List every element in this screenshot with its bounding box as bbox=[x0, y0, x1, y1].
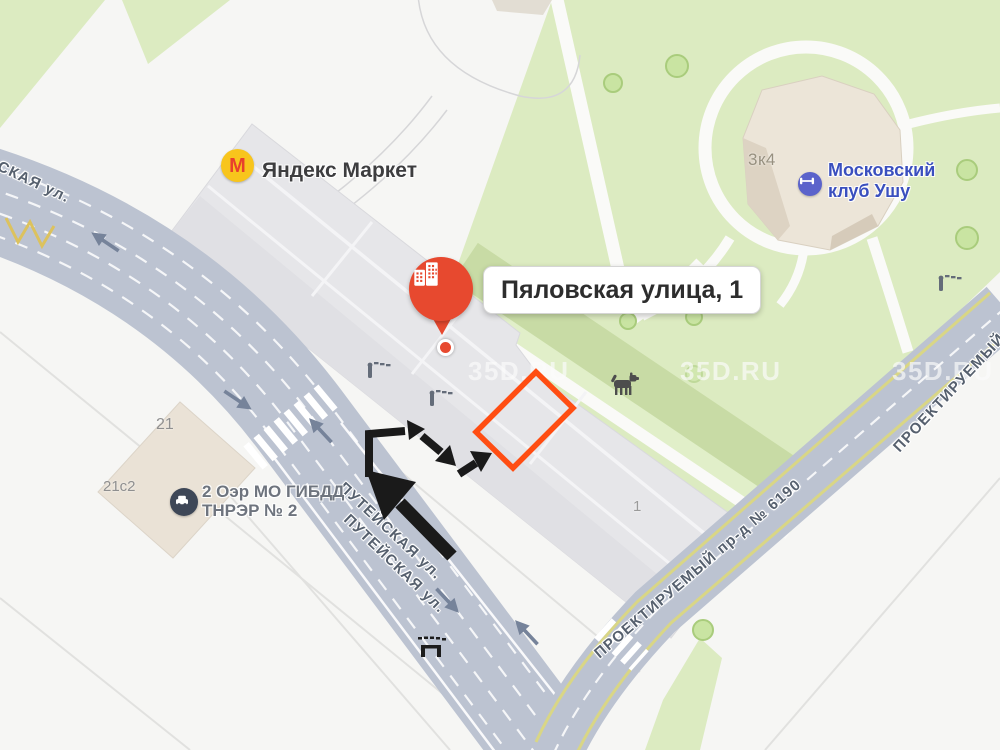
building-label-21s2: 21с2 bbox=[103, 478, 136, 495]
address-callout[interactable]: Пяловская улица, 1 bbox=[483, 266, 761, 314]
watermark: 35D.RU bbox=[680, 356, 781, 387]
dumbbell-icon[interactable] bbox=[798, 172, 822, 196]
watermark: 35D.RU bbox=[468, 356, 569, 387]
gibdd-label[interactable]: 2 Оэр МО ГИБДД ТНРЭР № 2 bbox=[202, 482, 344, 520]
building-pin-icon[interactable] bbox=[409, 257, 473, 321]
yandex-market-label[interactable]: Яндекс Маркет bbox=[262, 159, 417, 183]
police-car-icon[interactable] bbox=[170, 488, 198, 516]
pin-building-glyph bbox=[409, 257, 443, 291]
yandex-market-letter: М bbox=[229, 156, 246, 176]
ushu-club-label-line2: клуб Ушу bbox=[828, 181, 935, 202]
pin-anchor-dot bbox=[437, 339, 454, 356]
ushu-club-label[interactable]: Московский клуб Ушу bbox=[828, 160, 935, 202]
building-label-3k4: 3к4 bbox=[748, 150, 776, 170]
gibdd-label-line1: 2 Оэр МО ГИБДД bbox=[202, 482, 344, 501]
police-car-glyph bbox=[170, 488, 194, 512]
gibdd-label-line2: ТНРЭР № 2 bbox=[202, 501, 344, 520]
building-label-1: 1 bbox=[633, 498, 641, 515]
building-label-21: 21 bbox=[156, 416, 174, 434]
ushu-club-label-line1: Московский bbox=[828, 160, 935, 181]
dumbbell-glyph bbox=[798, 172, 816, 190]
yandex-market-logo-icon[interactable]: М bbox=[221, 149, 254, 182]
map-canvas[interactable]: 35D.RU 35D.RU 35D.RU СКАЯ ул. ПУТЕЙСКАЯ … bbox=[0, 0, 1000, 750]
